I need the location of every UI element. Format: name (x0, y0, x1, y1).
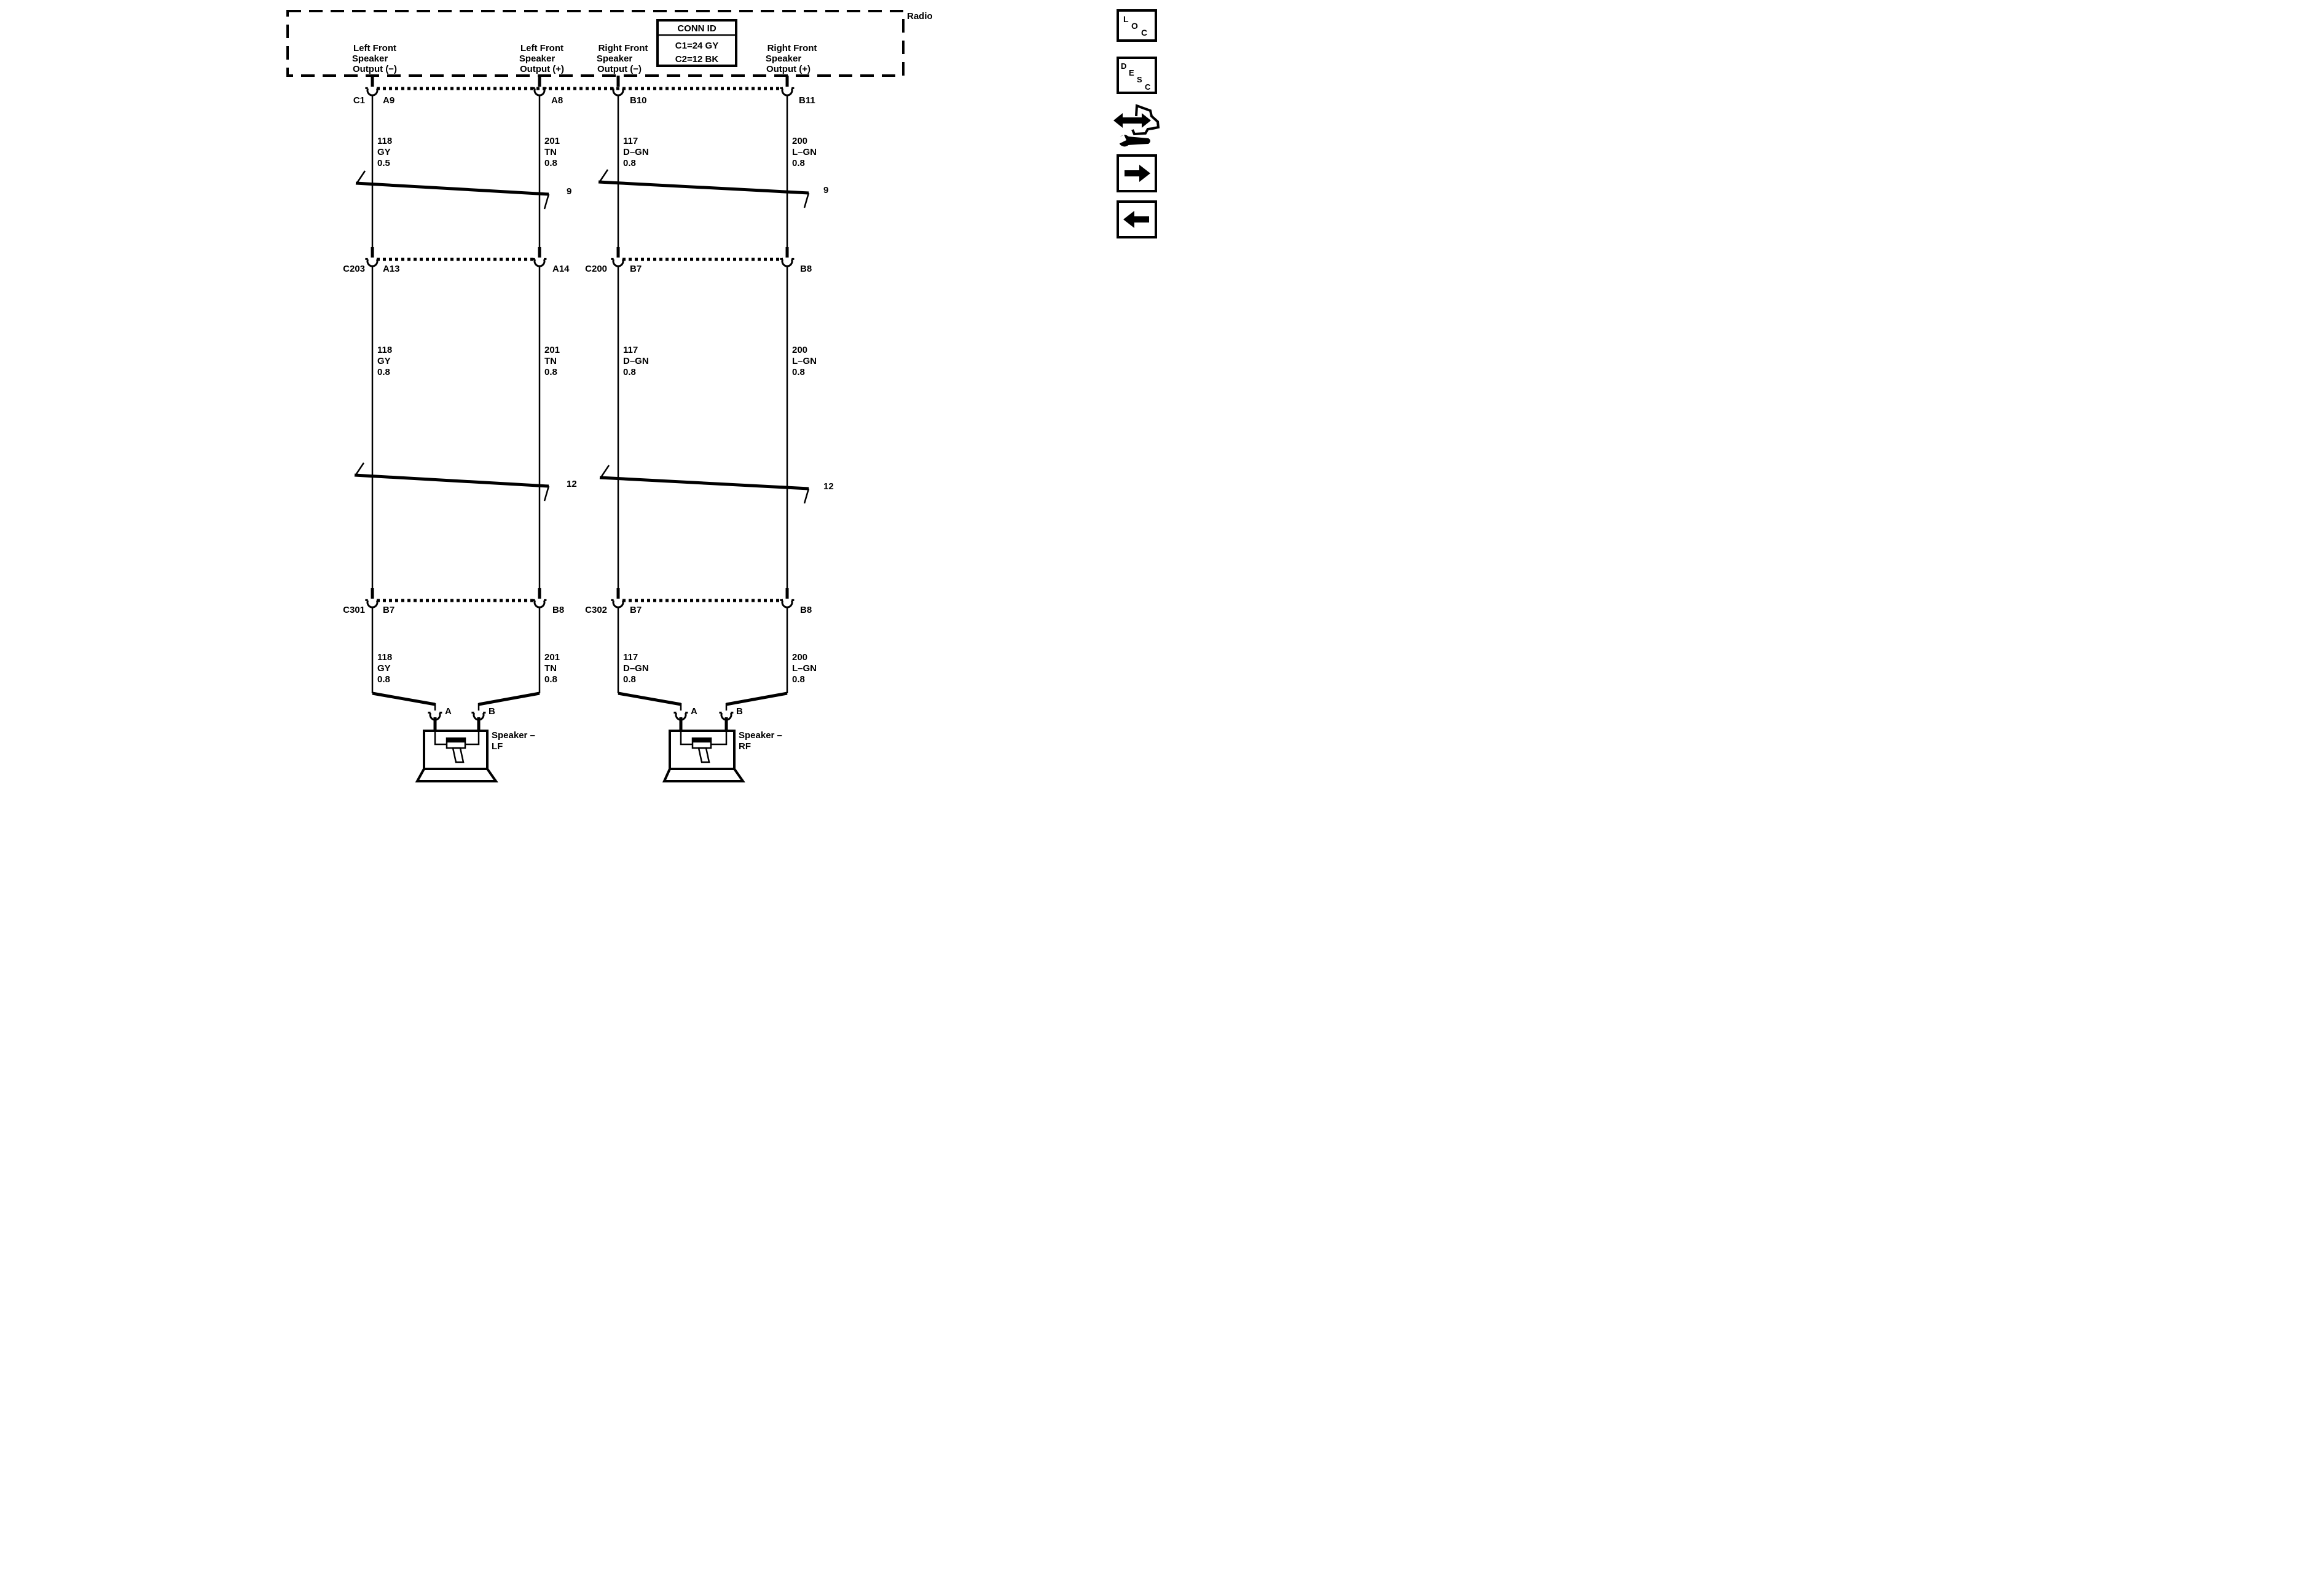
harness-id-9b: 9 (823, 185, 828, 195)
wire4-circuit: 200 (792, 136, 807, 146)
wire2-size: 0.8 (544, 158, 557, 168)
pin-label-a13: A13 (383, 264, 400, 274)
side-toolbar: L O C D E S C (1113, 10, 1158, 237)
wire-column-3 (611, 76, 681, 711)
back-button[interactable] (1118, 202, 1156, 237)
desc-button[interactable]: D E S C (1118, 58, 1156, 93)
wire4-color-bot: L–GN (792, 663, 817, 674)
harness-id-12a: 12 (567, 479, 577, 489)
radio-output-label-3: Right Front Speaker Output (−) (597, 43, 648, 74)
speaker-lf-name1: Speaker – (492, 730, 535, 741)
conn-id-row1: C1=24 GY (675, 41, 718, 51)
conn-id-table: CONN ID C1=24 GY C2=12 BK (658, 20, 736, 66)
connector-c200-name: C200 (585, 264, 607, 274)
radio-label: Radio (907, 11, 933, 22)
pin-label-c200-b8: B8 (800, 264, 812, 274)
wire1-color-bot: GY (377, 663, 391, 674)
output2-line2: Speaker (519, 53, 555, 64)
wire3-size: 0.8 (623, 158, 636, 168)
speaker-lf-name2: LF (492, 741, 503, 752)
wiring-diagram-page: Radio Left Front Speaker Output (−) Left… (0, 0, 1162, 790)
speaker-lf-box (424, 731, 487, 769)
wire1-circuit-bot: 118 (377, 652, 392, 663)
wire1-circuit-mid: 118 (377, 345, 392, 355)
conn-id-row2: C2=12 BK (675, 54, 719, 65)
pin-label-a9: A9 (383, 95, 395, 106)
radio-output-label-4: Right Front Speaker Output (+) (766, 43, 817, 74)
harness-mark-12-left: 12 (355, 463, 577, 501)
pin-label-b10: B10 (630, 95, 647, 106)
connector-c1-name: C1 (353, 95, 365, 106)
double-arrow-icon (1113, 113, 1151, 128)
wire1-circuit: 118 (377, 136, 392, 146)
output4-line2: Speaker (766, 53, 802, 64)
wire2-size-bot: 0.8 (544, 674, 557, 685)
wire2-color-mid: TN (544, 356, 557, 366)
pin-label-a14: A14 (552, 264, 570, 274)
wire-column-4 (726, 76, 794, 711)
loc-button[interactable]: L O C (1118, 10, 1156, 41)
wire3-circuit: 117 (623, 136, 638, 146)
wire-labels-top: 118 GY 0.5 201 TN 0.8 117 D–GN 0.8 200 L… (377, 136, 817, 168)
wire3-circuit-bot: 117 (623, 652, 638, 663)
output3-line3: Output (−) (597, 64, 642, 74)
speaker-rf-pin-a: A (691, 706, 697, 717)
wire1-size-mid: 0.8 (377, 367, 390, 377)
speaker-lf-pin-b: B (489, 706, 495, 717)
pin-label-a8: A8 (551, 95, 563, 106)
connector-c203-name: C203 (343, 264, 365, 274)
wire3-color-mid: D–GN (623, 356, 649, 366)
harness-id-12b: 12 (823, 481, 834, 492)
wire1-size: 0.5 (377, 158, 390, 168)
output3-line1: Right Front (599, 43, 648, 53)
wire1-color: GY (377, 147, 391, 157)
speaker-wiring-diagram: Radio Left Front Speaker Output (−) Left… (0, 0, 1162, 790)
wire3-color: D–GN (623, 147, 649, 157)
wire4-circuit-bot: 200 (792, 652, 807, 663)
speaker-rf-box (670, 731, 734, 769)
wire3-size-bot: 0.8 (623, 674, 636, 685)
pin-label-c302-b8: B8 (800, 605, 812, 615)
harness-mark-12-right: 12 (600, 465, 834, 503)
wire2-color: TN (544, 147, 557, 157)
speaker-lf-pin-a: A (445, 706, 452, 717)
radio-block: Radio Left Front Speaker Output (−) Left… (288, 11, 933, 76)
connector-c1: C1 A9 A8 B10 B11 (353, 89, 815, 106)
connector-c301-name: C301 (343, 605, 365, 615)
output1-line2: Speaker (352, 53, 388, 64)
output4-line1: Right Front (767, 43, 817, 53)
harness-id-9a: 9 (567, 186, 571, 197)
speaker-lf-cone (417, 769, 496, 781)
wrench-icon (1117, 135, 1150, 147)
wire-labels-bottom: 118 GY 0.8 201 TN 0.8 117 D–GN 0.8 200 L… (377, 652, 817, 685)
radio-output-label-2: Left Front Speaker Output (+) (519, 43, 564, 74)
wire-column-1 (365, 76, 435, 711)
radio-output-label-1: Left Front Speaker Output (−) (352, 43, 397, 74)
next-button[interactable] (1118, 156, 1156, 191)
wire1-size-bot: 0.8 (377, 674, 390, 685)
conn-id-title: CONN ID (677, 23, 716, 34)
wire2-circuit-mid: 201 (544, 345, 560, 355)
wire3-circuit-mid: 117 (623, 345, 638, 355)
service-info-icon[interactable] (1113, 106, 1158, 147)
output1-line1: Left Front (353, 43, 396, 53)
pin-label-c200-b7: B7 (630, 264, 642, 274)
pin-label-c302-b7: B7 (630, 605, 642, 615)
desc-letter-c: C (1145, 82, 1151, 92)
pin-label-b11: B11 (799, 95, 815, 106)
wire4-size-mid: 0.8 (792, 367, 805, 377)
pin-label-c301-b7: B7 (383, 605, 395, 615)
speaker-rf-cone (664, 769, 743, 781)
loc-letter-c: C (1141, 28, 1147, 37)
speaker-rf-symbol: A B Speaker – RF (664, 706, 782, 781)
output1-line3: Output (−) (353, 64, 397, 74)
wire-column-2 (479, 76, 546, 711)
desc-letter-s: S (1137, 75, 1142, 84)
loc-letter-o: O (1131, 21, 1138, 31)
wire2-color-bot: TN (544, 663, 557, 674)
wire2-circuit: 201 (544, 136, 560, 146)
speaker-lf-symbol: A B Speaker – LF (417, 706, 535, 781)
pin-label-c301-b8: B8 (552, 605, 564, 615)
wire4-size: 0.8 (792, 158, 805, 168)
wire1-color-mid: GY (377, 356, 391, 366)
output2-line3: Output (+) (520, 64, 564, 74)
speaker-rf-name2: RF (739, 741, 751, 752)
output4-line3: Output (+) (766, 64, 811, 74)
desc-letter-d: D (1121, 61, 1126, 71)
harness-mark-9-right: 9 (599, 170, 828, 208)
connector-c302-name: C302 (585, 605, 607, 615)
wire4-color: L–GN (792, 147, 817, 157)
speaker-rf-name1: Speaker – (739, 730, 782, 741)
output2-line1: Left Front (520, 43, 563, 53)
desc-letter-e: E (1129, 68, 1134, 77)
wire3-color-bot: D–GN (623, 663, 649, 674)
speaker-rf-pin-b: B (736, 706, 743, 717)
connector-c301: C301 B7 B8 (343, 600, 564, 615)
wire4-color-mid: L–GN (792, 356, 817, 366)
wire2-circuit-bot: 201 (544, 652, 560, 663)
wire-labels-middle: 118 GY 0.8 201 TN 0.8 117 D–GN 0.8 200 L… (377, 345, 817, 377)
wire4-circuit-mid: 200 (792, 345, 807, 355)
wire3-size-mid: 0.8 (623, 367, 636, 377)
wire2-size-mid: 0.8 (544, 367, 557, 377)
loc-letter-l: L (1123, 14, 1129, 24)
wire4-size-bot: 0.8 (792, 674, 805, 685)
output3-line2: Speaker (597, 53, 633, 64)
